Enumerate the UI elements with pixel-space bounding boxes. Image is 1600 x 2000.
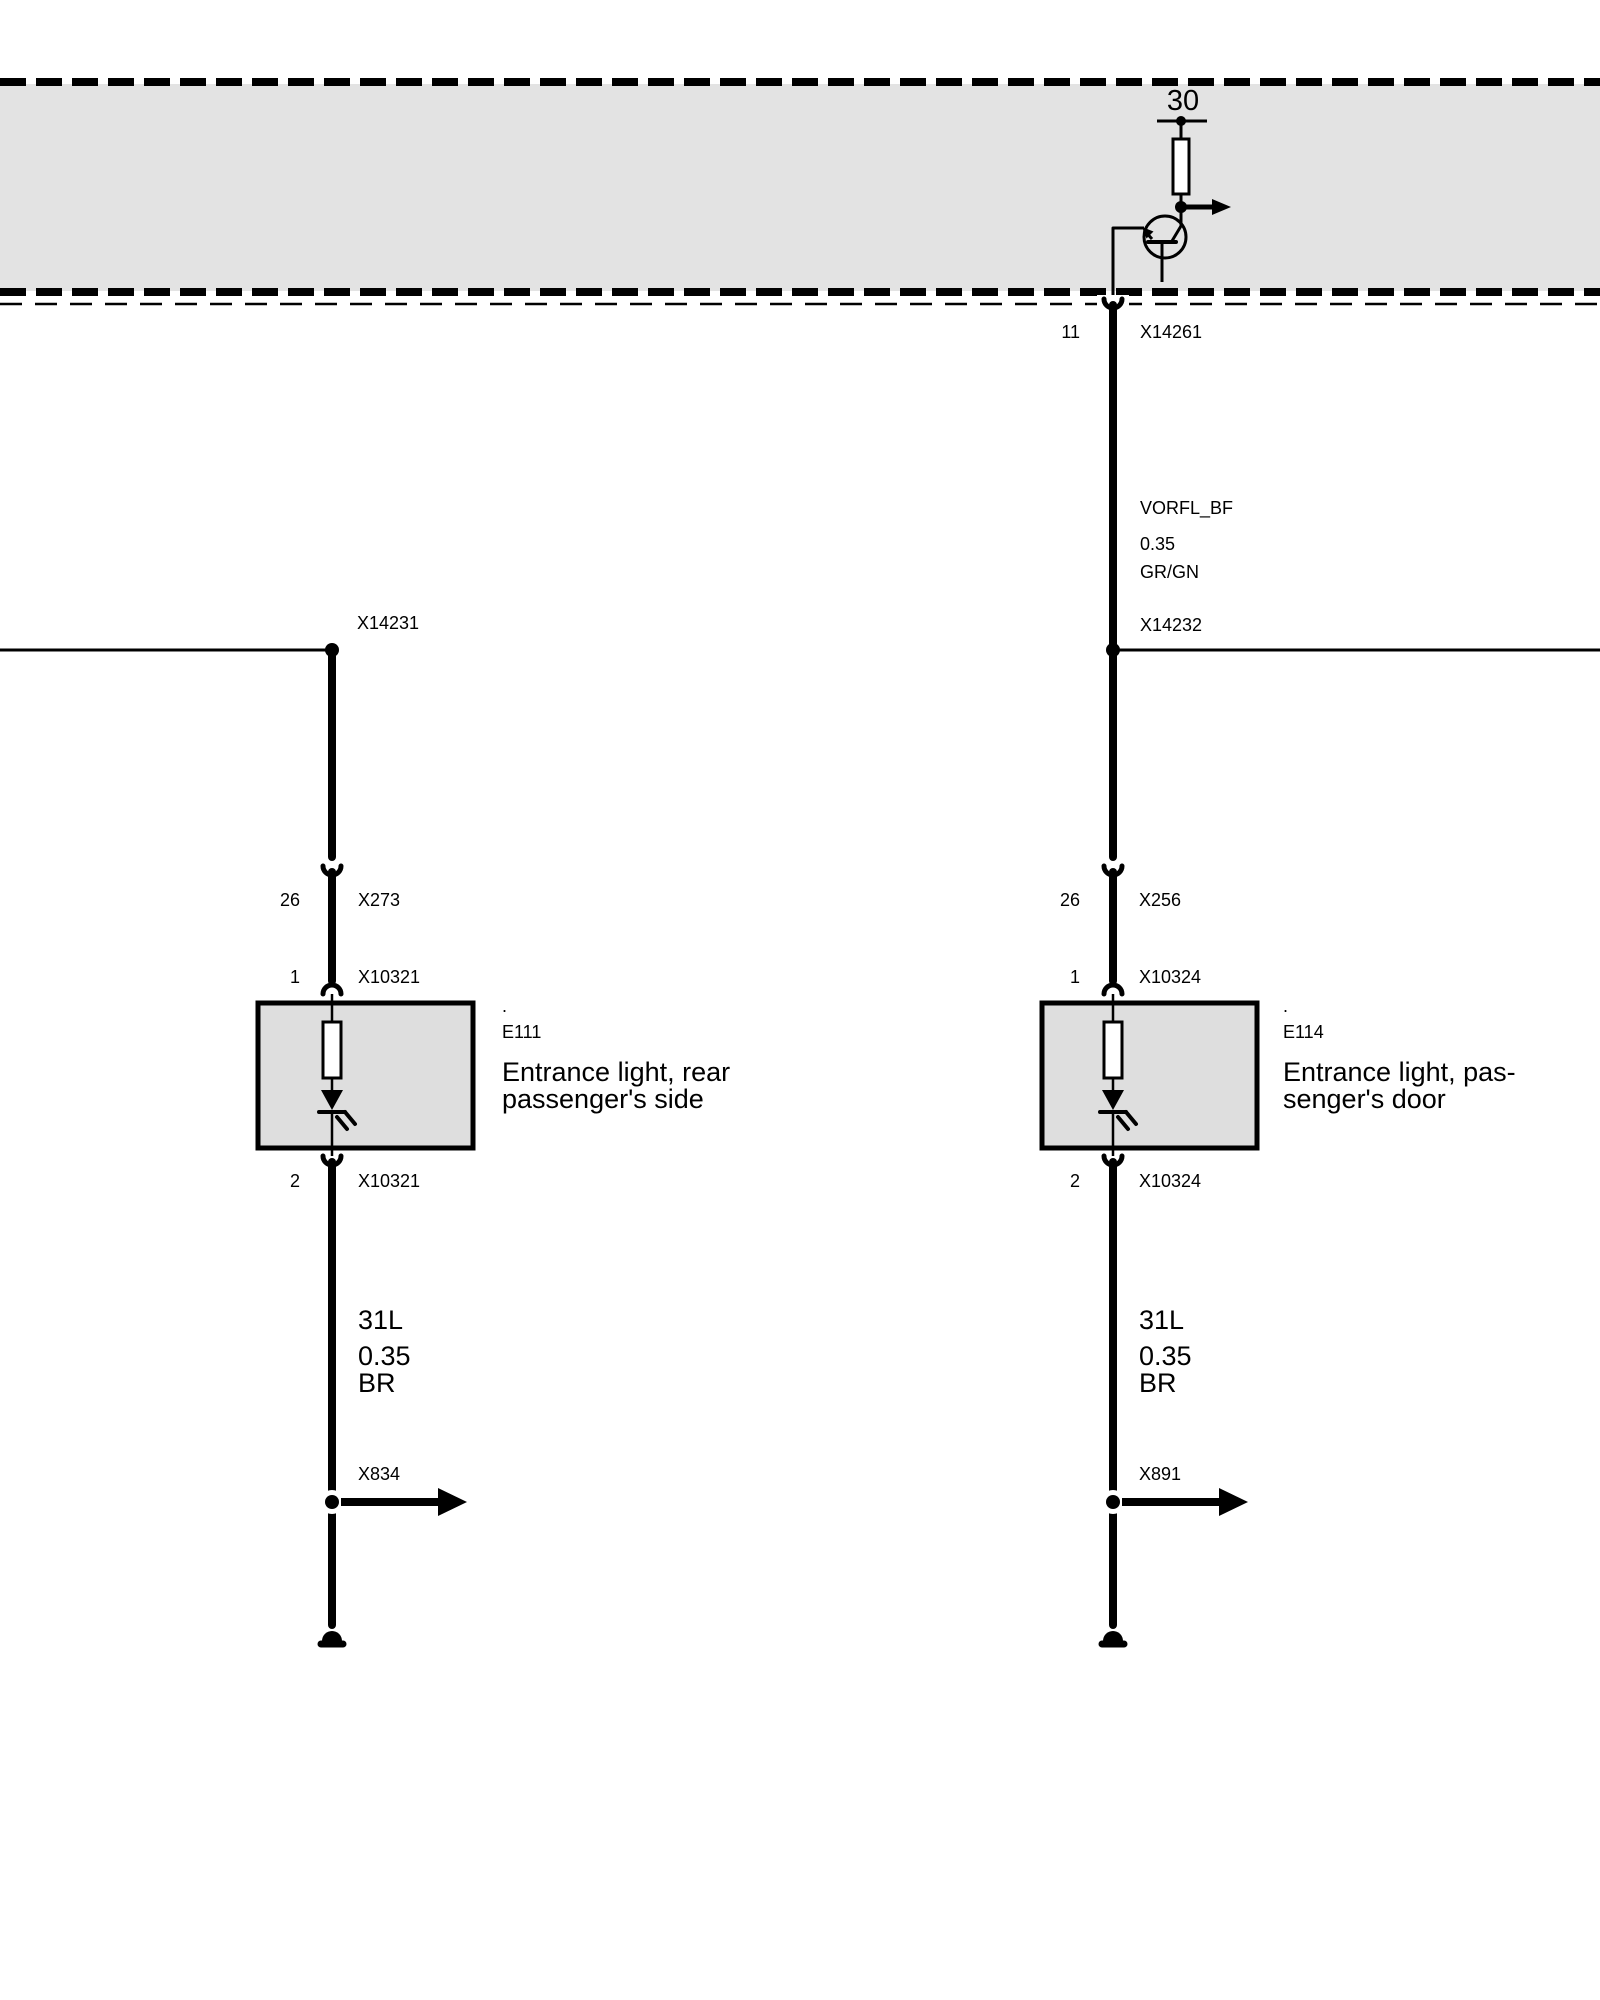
splice-arrow-icon[interactable] — [341, 1488, 467, 1516]
ground-icon[interactable] — [1102, 1631, 1124, 1644]
pin-number: 26 — [280, 890, 300, 910]
wire-code-label: 31L — [358, 1305, 403, 1335]
connector-icon-x10321-pin1[interactable] — [323, 985, 341, 994]
left-branch: X14231 26 X273 1 X10321 . E111 Ent — [0, 613, 730, 1644]
right-branch: 11 X14261 VORFL_BF 0.35 GR/GN X14232 26 … — [1042, 295, 1600, 1644]
wire-code-label: 31L — [1139, 1305, 1184, 1335]
wire-gauge-label: 0.35 — [1139, 1341, 1192, 1371]
component-name-line1: Entrance light, rear — [502, 1057, 730, 1087]
splice-label-x891[interactable]: X891 — [1139, 1464, 1181, 1484]
splice-dot-x834[interactable] — [325, 1495, 339, 1509]
splice-arrow-icon[interactable] — [1122, 1488, 1248, 1516]
resistor-icon — [323, 1022, 341, 1078]
connector-label-x10324[interactable]: X10324 — [1139, 967, 1201, 987]
connector-label-x14261[interactable]: X14261 — [1140, 322, 1202, 342]
wire-color-label: BR — [358, 1368, 396, 1398]
pin-number: 1 — [1070, 967, 1080, 987]
component-name-line1: Entrance light, pas- — [1283, 1057, 1516, 1087]
lamp-e114-box[interactable] — [1042, 1003, 1257, 1148]
connector-label-x14231[interactable]: X14231 — [357, 613, 419, 633]
terminal-30-label: 30 — [1167, 85, 1199, 117]
connector-label-x273[interactable]: X273 — [358, 890, 400, 910]
splice-dot-x891[interactable] — [1106, 1495, 1120, 1509]
component-name-line2: senger's door — [1283, 1084, 1446, 1114]
pin-number: 26 — [1060, 890, 1080, 910]
resistor-icon — [1173, 139, 1189, 194]
splice-label-x834[interactable]: X834 — [358, 1464, 400, 1484]
resistor-icon — [1104, 1022, 1122, 1078]
wire-color-label: BR — [1139, 1368, 1177, 1398]
component-id-e114[interactable]: E114 — [1283, 1022, 1324, 1042]
connector-label-x10324b[interactable]: X10324 — [1139, 1171, 1201, 1191]
connector-label-x10321[interactable]: X10321 — [358, 967, 420, 987]
pin-number: 1 — [290, 967, 300, 987]
wire-gauge-label: 0.35 — [1140, 534, 1175, 554]
component-name-line2: passenger's side — [502, 1084, 704, 1114]
module-band-fill — [0, 84, 1600, 291]
pin-number: 11 — [1061, 322, 1080, 342]
connector-label-x256[interactable]: X256 — [1139, 890, 1181, 910]
wire-color-label: GR/GN — [1140, 562, 1199, 582]
connector-label-x14232[interactable]: X14232 — [1140, 615, 1202, 635]
ground-icon[interactable] — [321, 1631, 343, 1644]
pin-number: 2 — [1070, 1171, 1080, 1191]
signal-name-label: VORFL_BF — [1140, 498, 1233, 519]
wiring-diagram-page: 30 11 X14261 VORFL_BF 0.35 GR/GN — [0, 0, 1600, 2000]
connector-label-x10321b[interactable]: X10321 — [358, 1171, 420, 1191]
control-module-band — [0, 82, 1600, 304]
lamp-e111-box[interactable] — [258, 1003, 473, 1148]
wire-gauge-label: 0.35 — [358, 1341, 411, 1371]
pin-number: 2 — [290, 1171, 300, 1191]
component-id-e111[interactable]: E111 — [502, 1022, 541, 1042]
connector-icon-x10324-pin1[interactable] — [1104, 985, 1122, 994]
component-dot: . — [1283, 996, 1288, 1016]
component-dot: . — [502, 996, 507, 1016]
